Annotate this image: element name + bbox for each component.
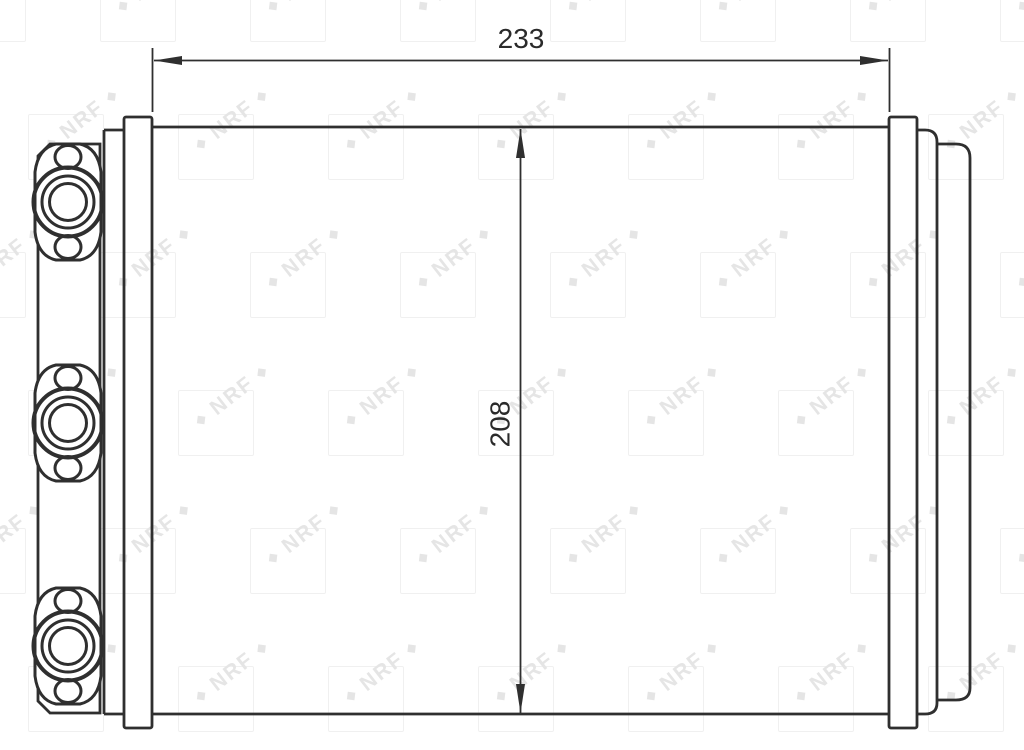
drawing-canvas: ◆ NRF ◆◆ NRF ◆◆ NRF ◆◆ NRF ◆◆ NRF ◆◆ NRF… — [0, 0, 1024, 750]
port-flanges — [34, 144, 103, 704]
flange-plate-outline — [35, 588, 101, 704]
flange-fitting-3 — [34, 588, 103, 704]
arrowhead-left-icon — [154, 56, 182, 65]
arrowhead-right-icon — [860, 56, 888, 65]
right-tank — [889, 117, 917, 728]
arrowhead-down-icon — [516, 684, 525, 713]
flange-fitting-2 — [34, 365, 103, 481]
flange-plate-outline — [35, 144, 101, 260]
flange-fitting-1 — [34, 144, 103, 260]
dimension-width: 233 — [153, 23, 890, 112]
dimension-height: 208 — [485, 129, 526, 713]
right-plate-layer-3 — [937, 144, 970, 700]
technical-drawing: 233 208 — [0, 0, 1024, 750]
right-stacked-plates — [917, 130, 970, 714]
arrowhead-up-icon — [516, 129, 525, 158]
right-plate-layer-2 — [917, 130, 937, 714]
width-dimension-label: 233 — [498, 23, 545, 54]
height-dimension-label: 208 — [485, 401, 516, 448]
flange-plate-outline — [35, 365, 101, 481]
left-tank — [124, 117, 152, 728]
